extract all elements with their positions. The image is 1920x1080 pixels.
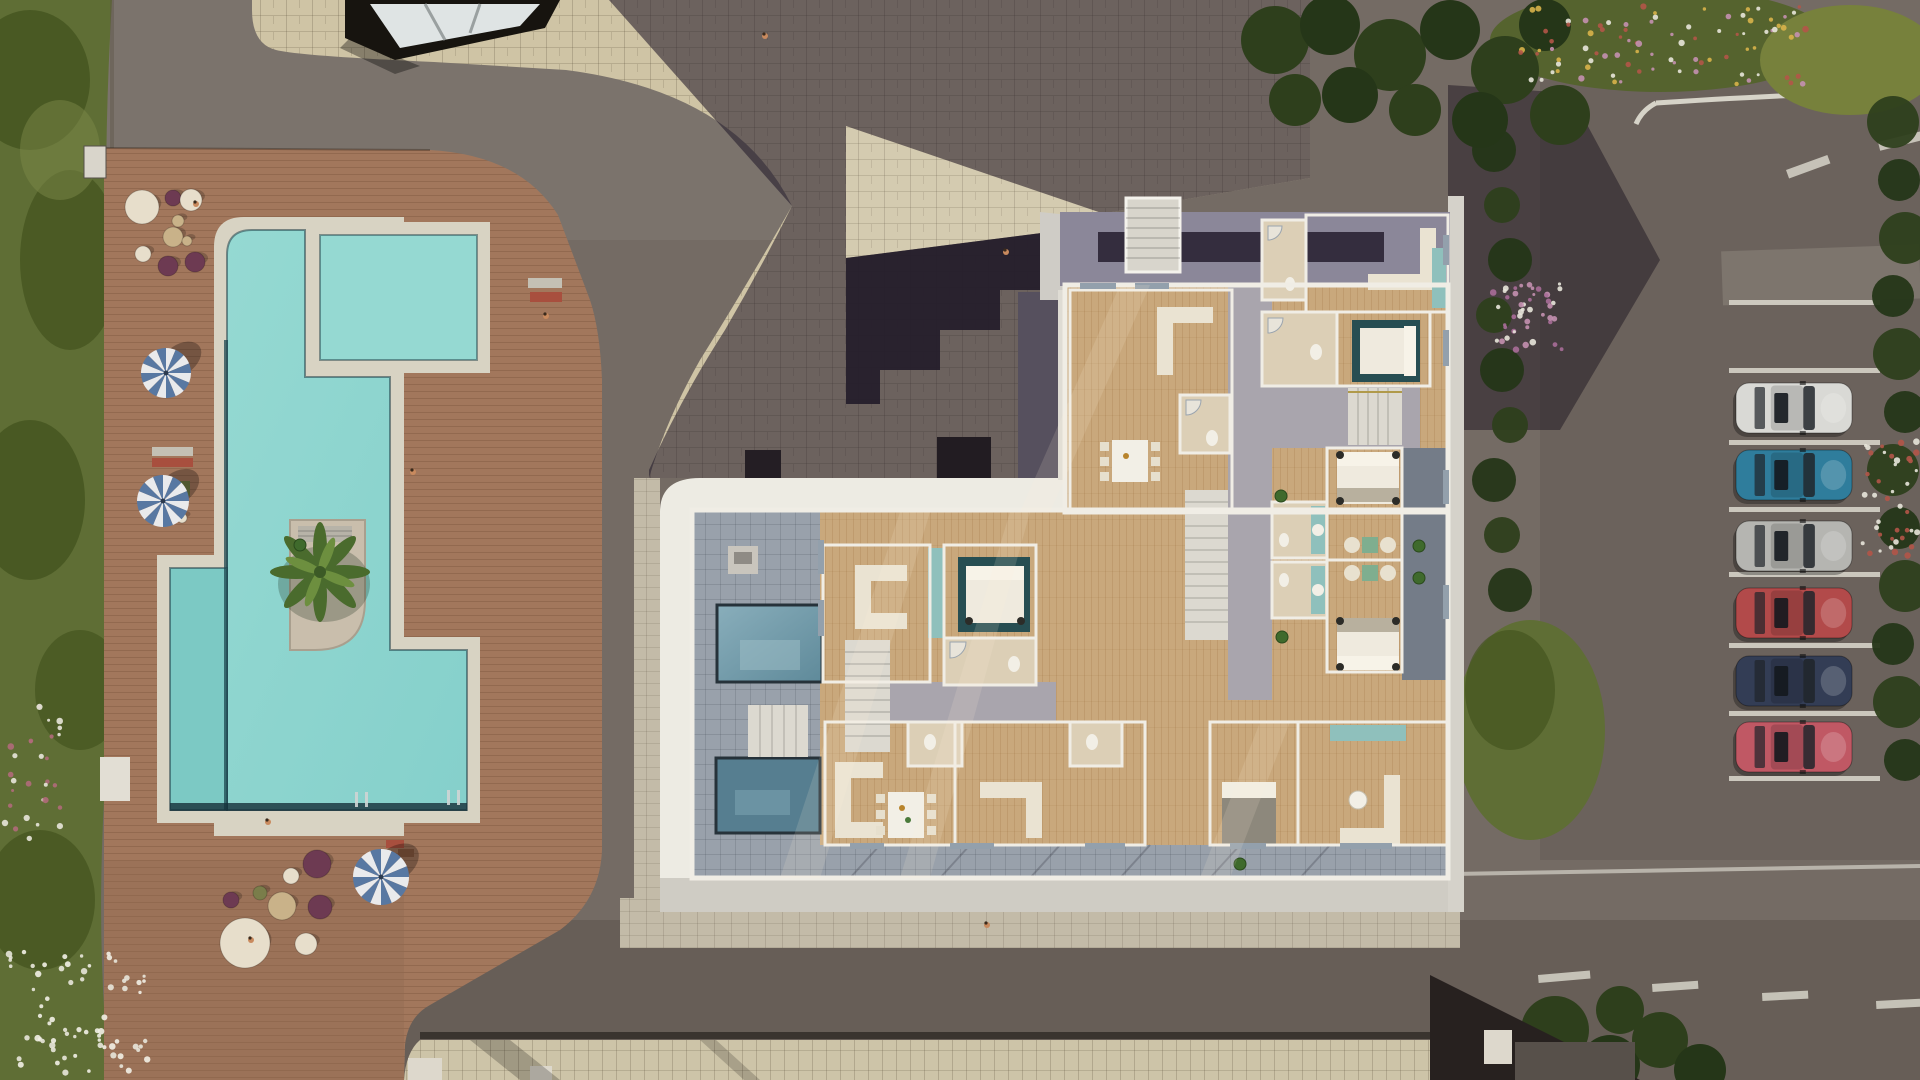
flower: [1686, 24, 1691, 29]
flower: [58, 805, 62, 809]
flower: [1895, 528, 1900, 533]
flower: [51, 1038, 56, 1043]
plant: [1413, 572, 1425, 584]
flower: [1757, 73, 1760, 76]
car-pink-red: [1733, 720, 1852, 776]
flower: [1798, 5, 1801, 8]
flower: [1792, 11, 1796, 15]
flower: [1600, 27, 1605, 32]
flower: [1867, 551, 1873, 557]
flower: [1527, 307, 1533, 313]
bed-post: [1392, 451, 1400, 459]
flower: [1885, 496, 1890, 501]
flower: [36, 823, 40, 827]
flower: [136, 980, 141, 985]
deck-pouf: [172, 215, 184, 227]
flower: [122, 979, 126, 983]
flower: [119, 1064, 123, 1068]
flower: [1588, 58, 1593, 63]
flower: [108, 984, 114, 990]
tree: [1867, 96, 1919, 148]
table-setting: [899, 805, 905, 811]
flower: [80, 954, 83, 957]
sink-icon: [1312, 584, 1324, 596]
flower: [1862, 492, 1868, 498]
toilet-icon: [1086, 734, 1098, 750]
site-plan-canvas: [0, 0, 1920, 1080]
pool-deep-edge-arm: [170, 803, 227, 811]
flower: [102, 1045, 106, 1049]
parking-stall-line: [1729, 368, 1880, 373]
flower: [57, 823, 63, 829]
parking-stall-line: [1729, 643, 1880, 648]
flower: [1525, 325, 1529, 329]
flower: [55, 1061, 60, 1066]
coffee-table-round: [1349, 791, 1367, 809]
bed-post: [1392, 663, 1400, 671]
stair-5: [1348, 388, 1402, 445]
deck-pouf: [253, 886, 267, 900]
car-white: [1733, 381, 1852, 437]
stair-2: [748, 705, 808, 757]
flower: [144, 1056, 150, 1062]
tree: [1878, 507, 1920, 549]
flower: [1517, 313, 1523, 319]
flower: [1583, 45, 1589, 51]
twin1-runner: [1337, 488, 1399, 502]
hedge: [1480, 348, 1524, 392]
flower: [1693, 57, 1698, 62]
flower: [50, 734, 54, 738]
flower: [1529, 77, 1534, 82]
toilet-icon: [1008, 656, 1020, 672]
bed-post: [965, 617, 973, 625]
flower: [143, 1039, 147, 1043]
flower: [1748, 18, 1754, 24]
flower: [1528, 298, 1532, 302]
deck-pouf: [223, 892, 239, 908]
bedroom3-duvet: [1360, 328, 1406, 374]
door-recess2: [745, 450, 781, 478]
flower: [65, 1032, 69, 1036]
twin2-runner: [1337, 618, 1399, 632]
flower: [56, 718, 63, 725]
hedge: [1492, 407, 1528, 443]
flower: [1740, 72, 1744, 76]
flower: [1524, 319, 1530, 325]
deck-pouf: [308, 895, 332, 919]
flower: [51, 1047, 56, 1052]
flower: [1637, 69, 1642, 74]
flower: [1878, 533, 1882, 537]
flower: [101, 1014, 107, 1020]
dining-set-2: [1100, 440, 1160, 482]
tree: [1872, 623, 1914, 665]
flower: [1523, 342, 1529, 348]
bottom-paver-strip: [404, 1040, 1448, 1080]
flower: [1914, 529, 1920, 535]
grass-pocket-dark: [1465, 630, 1555, 750]
pool-water-kids: [320, 235, 477, 360]
flower: [1619, 80, 1622, 83]
flower: [73, 1035, 76, 1038]
flower: [41, 1039, 45, 1043]
flower: [1741, 13, 1746, 18]
pool-lane-line: [224, 340, 228, 810]
flower: [1877, 479, 1881, 483]
bed-post: [1017, 617, 1025, 625]
flower: [1547, 303, 1552, 308]
deck-pouf: [163, 227, 183, 247]
parking-stall-line: [1729, 300, 1880, 305]
car-red: [1733, 586, 1852, 642]
flower: [1499, 338, 1505, 344]
flower: [1640, 3, 1646, 9]
flower: [1883, 451, 1886, 454]
flower: [1795, 32, 1800, 37]
flower: [1905, 510, 1909, 514]
bed-post: [1336, 617, 1344, 625]
flower: [11, 778, 17, 784]
flower: [1906, 456, 1912, 462]
flower: [1678, 69, 1682, 73]
flower: [110, 1052, 116, 1058]
bottom-white-block: [408, 1058, 442, 1080]
flower: [1650, 20, 1654, 24]
tree-cluster-top: [1241, 6, 1309, 74]
flower: [1746, 48, 1749, 51]
tree-cluster-top: [1530, 85, 1590, 145]
flower: [107, 955, 112, 960]
flower: [1627, 39, 1630, 42]
car-teal-blue: [1733, 448, 1852, 504]
hedge: [1472, 458, 1516, 502]
flower: [1880, 445, 1884, 449]
toilet-icon: [1310, 344, 1322, 360]
flower: [1611, 74, 1615, 78]
flower: [1865, 445, 1870, 450]
flower: [109, 1043, 116, 1050]
flower: [62, 1056, 67, 1061]
flower: [1898, 504, 1903, 509]
flower: [1518, 50, 1523, 55]
bed-post: [1336, 663, 1344, 671]
flower: [1904, 552, 1910, 558]
table-setting: [1123, 453, 1129, 459]
deck-pouf: [268, 892, 296, 920]
flower: [45, 757, 49, 761]
flower: [35, 971, 41, 977]
flower: [1513, 346, 1519, 352]
flower: [1519, 302, 1524, 307]
flower: [1530, 339, 1537, 346]
sun-lounger: [152, 447, 193, 456]
car-navy: [1733, 654, 1852, 710]
flower: [1785, 75, 1790, 80]
flower: [142, 979, 146, 983]
flower: [1544, 293, 1548, 297]
balcony-east: [1402, 448, 1448, 680]
deck-planter-box: [84, 146, 106, 178]
flower: [80, 977, 84, 981]
flower: [1588, 30, 1594, 36]
sun-lounger: [528, 278, 562, 288]
flower: [122, 986, 128, 992]
flower: [18, 1062, 24, 1068]
flower: [1890, 537, 1894, 541]
flower: [87, 1069, 91, 1073]
flower: [1556, 61, 1561, 66]
flower: [1556, 69, 1560, 73]
flower: [1532, 293, 1535, 296]
flower: [1556, 57, 1561, 62]
bedroom3-pillows: [1404, 326, 1416, 376]
deck-pouf: [158, 256, 178, 276]
flower: [1551, 70, 1555, 74]
flower: [47, 719, 50, 722]
table-setting: [905, 817, 911, 823]
deck-pouf: [185, 252, 205, 272]
bed-post: [1336, 451, 1344, 459]
flower: [1673, 61, 1676, 64]
stair-3: [1126, 198, 1180, 272]
flower: [1861, 541, 1865, 545]
flower: [1893, 539, 1899, 545]
flower: [126, 1068, 132, 1074]
tree-cluster-top: [1420, 0, 1480, 60]
flower: [11, 789, 14, 792]
flower: [8, 743, 15, 750]
flower: [1624, 28, 1628, 32]
flower: [1913, 438, 1920, 445]
flower: [1612, 80, 1617, 85]
flower: [1717, 29, 1721, 33]
flower: [1578, 75, 1584, 81]
flower: [47, 1021, 51, 1025]
sun-lounger: [152, 458, 193, 467]
flower: [1566, 23, 1570, 27]
flower: [1594, 51, 1598, 55]
flower: [1747, 78, 1752, 83]
pool-water-arm: [170, 568, 227, 810]
corner-white-block: [1484, 1030, 1512, 1064]
flower: [29, 739, 34, 744]
flower: [1560, 347, 1564, 351]
flower: [1802, 26, 1809, 33]
flower: [1538, 49, 1542, 53]
flower: [1615, 52, 1621, 58]
tree-cluster-bottom: [1596, 986, 1644, 1034]
toilet-icon: [924, 734, 936, 750]
flower: [1800, 81, 1806, 87]
flower: [1550, 47, 1554, 51]
flower: [12, 753, 17, 758]
flower: [34, 1035, 41, 1042]
parking-stall-line: [1729, 711, 1880, 716]
pool-deep-edge: [227, 803, 467, 811]
flower: [6, 951, 13, 958]
flower: [1894, 463, 1897, 466]
flower: [1653, 15, 1658, 20]
bed-post: [1392, 617, 1400, 625]
flower: [1503, 325, 1507, 329]
tree-cluster-top: [1322, 67, 1378, 123]
flower: [1872, 493, 1877, 498]
bed-post: [1392, 497, 1400, 505]
flower: [1889, 545, 1894, 550]
deck-pouf: [295, 933, 317, 955]
flower: [1619, 35, 1622, 38]
flower: [76, 1027, 81, 1032]
flower: [1557, 286, 1562, 291]
flower: [1900, 536, 1905, 541]
plant: [1276, 631, 1288, 643]
flower: [22, 950, 26, 954]
flower: [1541, 313, 1545, 317]
flower: [1772, 27, 1778, 33]
parking-stall-line: [1729, 776, 1880, 781]
flower: [1699, 60, 1704, 65]
deck-pouf: [220, 918, 270, 968]
deck-pouf: [180, 189, 202, 211]
flower: [1511, 314, 1516, 319]
deck-pouf: [283, 868, 299, 884]
side-walkway: [634, 478, 660, 912]
flower: [1734, 82, 1738, 86]
flower: [1746, 7, 1750, 11]
flower: [1558, 282, 1561, 285]
flower: [1635, 50, 1639, 54]
flower: [1874, 525, 1879, 530]
flower: [24, 815, 30, 821]
flower: [1606, 20, 1611, 25]
flower: [1913, 449, 1919, 455]
toilet-icon: [1279, 533, 1289, 547]
dining-table: [1112, 440, 1148, 482]
flower: [1650, 53, 1653, 56]
flower: [57, 733, 60, 736]
aerial-site-render: [0, 0, 1920, 1080]
flower: [1789, 35, 1794, 40]
right-greenery: [1455, 620, 1605, 840]
deck-pouf: [125, 190, 159, 224]
flower: [98, 1043, 104, 1049]
flower: [1678, 40, 1684, 46]
parking-stall-line: [1729, 507, 1880, 512]
flower: [1513, 286, 1517, 290]
car-silver: [1733, 519, 1852, 575]
tree: [1867, 444, 1919, 496]
flower: [1898, 440, 1904, 446]
flower: [1624, 22, 1629, 27]
flower: [1490, 289, 1497, 296]
flower: [1585, 64, 1591, 70]
flower: [1651, 68, 1654, 71]
plant: [1413, 540, 1425, 552]
flower: [1547, 315, 1553, 321]
bed-post: [1336, 497, 1344, 505]
flower: [1553, 342, 1558, 347]
flower: [58, 726, 63, 731]
flower: [1789, 81, 1794, 86]
flower: [59, 966, 65, 972]
flower: [2, 820, 8, 826]
deck-bench: [100, 757, 130, 801]
hedge: [1484, 517, 1520, 553]
flower: [1742, 32, 1745, 35]
flower: [1892, 549, 1898, 555]
palm-crown: [314, 566, 326, 578]
flower: [118, 1053, 124, 1059]
flower: [1543, 29, 1548, 34]
flower: [1505, 295, 1509, 299]
flower: [1495, 339, 1499, 343]
plant: [294, 539, 306, 551]
flower: [17, 1056, 22, 1061]
flower: [1905, 528, 1910, 533]
fascia-south: [660, 878, 1462, 912]
flower: [1583, 18, 1589, 24]
flower: [114, 959, 118, 963]
flower: [1535, 52, 1539, 56]
tree-cluster-top: [1519, 0, 1571, 51]
flower: [1703, 7, 1706, 10]
flower: [42, 797, 48, 803]
plunge-pool-2-light: [735, 790, 790, 815]
flower: [1536, 286, 1542, 292]
flower: [13, 826, 18, 831]
flower: [1513, 291, 1519, 297]
flower: [1769, 18, 1773, 22]
parking-stall-line: [1729, 440, 1880, 445]
tree-cluster-top: [1452, 92, 1508, 148]
flower: [138, 991, 141, 994]
deck-pouf: [165, 190, 181, 206]
flower: [1889, 454, 1894, 459]
flower: [68, 980, 73, 985]
flower: [98, 1038, 101, 1041]
kitchen-teal: [1330, 725, 1406, 741]
flower: [1496, 305, 1500, 309]
flower: [1519, 284, 1523, 288]
flower: [1549, 39, 1554, 44]
flower: [1764, 30, 1768, 34]
flower: [1910, 529, 1914, 533]
plant: [1275, 490, 1287, 502]
flower: [81, 968, 87, 974]
flower: [1909, 544, 1914, 549]
deck-pouf: [303, 850, 331, 878]
flower: [53, 783, 57, 787]
hedge: [1488, 238, 1532, 282]
flower: [1546, 299, 1551, 304]
flower: [45, 996, 50, 1001]
flower: [44, 783, 48, 787]
flower: [115, 1039, 120, 1044]
flower: [36, 704, 42, 710]
flower: [1513, 330, 1516, 333]
flower: [1540, 78, 1544, 82]
twin1-pillows: [1337, 452, 1399, 466]
flower: [1602, 53, 1608, 59]
hedge: [1484, 187, 1520, 223]
flower: [1891, 490, 1894, 493]
flower: [1636, 40, 1643, 47]
flower: [1670, 33, 1673, 36]
flower: [31, 964, 35, 968]
flower: [1724, 55, 1729, 60]
flower: [143, 975, 146, 978]
